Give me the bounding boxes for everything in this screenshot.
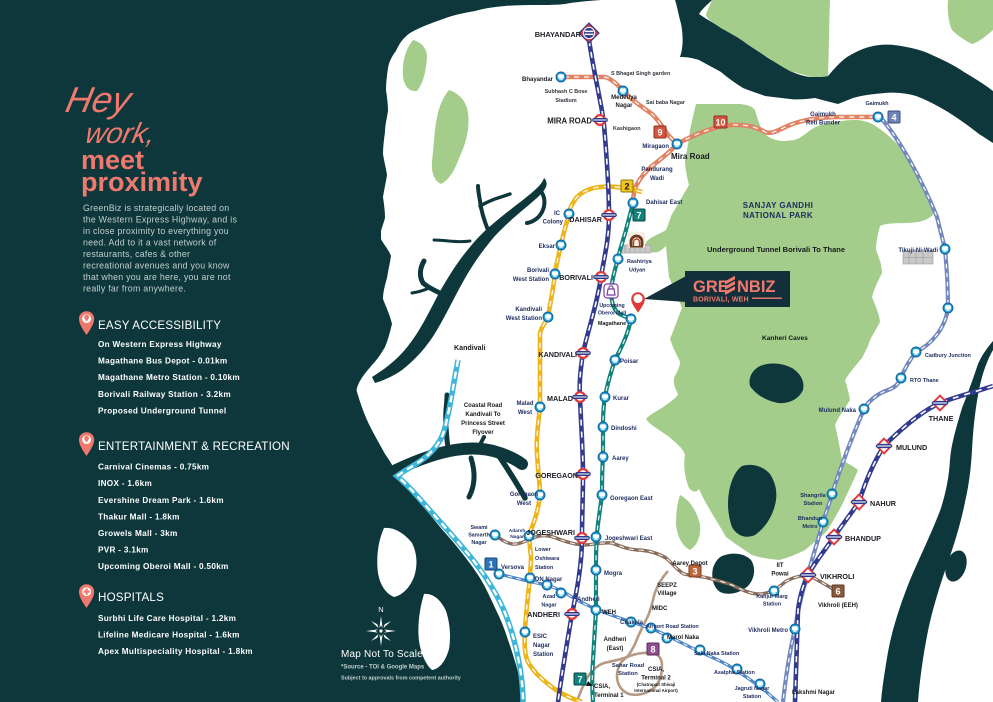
- svg-text:the Western Express Highway, a: the Western Express Highway, and is: [83, 215, 237, 225]
- svg-text:SANJAY GANDHI: SANJAY GANDHI: [743, 201, 814, 210]
- svg-text:Oberoi Mall: Oberoi Mall: [598, 311, 627, 317]
- svg-text:VIKHROLI: VIKHROLI: [820, 572, 854, 581]
- svg-text:Surbhi Life Care Hospital - 1.: Surbhi Life Care Hospital - 1.2km: [98, 614, 236, 623]
- svg-text:Pandurang: Pandurang: [641, 167, 673, 173]
- svg-text:BORIVALI: BORIVALI: [559, 273, 593, 282]
- svg-text:(Chatrapati Shivaji: (Chatrapati Shivaji: [637, 682, 676, 687]
- svg-text:Upcoming Oberoi Mall - 0.50km: Upcoming Oberoi Mall - 0.50km: [98, 562, 229, 571]
- svg-text:Nagar: Nagar: [541, 603, 557, 609]
- svg-text:West Station: West Station: [506, 316, 543, 322]
- svg-text:Kandivali To: Kandivali To: [465, 412, 501, 418]
- svg-text:DN Nagar: DN Nagar: [535, 577, 563, 583]
- svg-text:Underground Tunnel Borivali To: Underground Tunnel Borivali To Thane: [707, 245, 845, 254]
- svg-text:MULUND: MULUND: [896, 443, 927, 452]
- svg-text:Station: Station: [804, 501, 824, 507]
- svg-text:Magathane Bus Depot - 0.01km: Magathane Bus Depot - 0.01km: [98, 357, 227, 366]
- svg-text:Miragaon: Miragaon: [642, 144, 669, 150]
- svg-text:Goregaon East: Goregaon East: [610, 496, 653, 502]
- svg-text:Sai baba Nagar: Sai baba Nagar: [646, 100, 686, 106]
- svg-text:Proposed Underground Tunnel: Proposed Underground Tunnel: [98, 406, 226, 415]
- svg-text:3: 3: [692, 567, 697, 577]
- svg-text:*Source - TOI & Google Maps: *Source - TOI & Google Maps: [341, 665, 425, 671]
- svg-text:Nagar: Nagar: [533, 643, 551, 649]
- svg-text:Goregaon: Goregaon: [510, 492, 539, 498]
- svg-text:Saki Naka Station: Saki Naka Station: [694, 651, 739, 657]
- svg-text:Rashtriya: Rashtriya: [627, 259, 653, 265]
- svg-text:Samarth: Samarth: [468, 533, 490, 539]
- svg-text:Dindoshi: Dindoshi: [611, 426, 637, 432]
- svg-text:Growels Mall - 3km: Growels Mall - 3km: [98, 529, 178, 538]
- svg-text:Borivali: Borivali: [527, 268, 549, 274]
- svg-text:DAHISAR: DAHISAR: [569, 215, 603, 224]
- svg-text:Coastal Road: Coastal Road: [464, 403, 503, 409]
- svg-text:Powai: Powai: [771, 572, 789, 578]
- svg-text:in close proximity to everythi: in close proximity to everything you: [83, 226, 229, 236]
- svg-text:ESIC: ESIC: [533, 634, 548, 640]
- svg-text:Flyover: Flyover: [472, 430, 494, 436]
- svg-text:Station: Station: [763, 602, 781, 608]
- svg-text:Kanheri Caves: Kanheri Caves: [762, 335, 808, 342]
- svg-text:IIT: IIT: [777, 563, 784, 569]
- svg-text:Shangrila: Shangrila: [800, 493, 826, 499]
- svg-text:ENTERTAINMENT & RECREATION: ENTERTAINMENT & RECREATION: [98, 440, 290, 453]
- svg-text:Vikhroli Metro: Vikhroli Metro: [748, 628, 788, 634]
- svg-text:Lifeline Medicare Hospital - 1: Lifeline Medicare Hospital - 1.6km: [98, 631, 240, 640]
- svg-text:MIDC: MIDC: [652, 606, 668, 612]
- svg-text:Chakala: Chakala: [620, 620, 644, 626]
- svg-text:Apex Multispeciality Hospital: Apex Multispeciality Hospital - 1.8km: [98, 647, 253, 656]
- svg-text:7: 7: [636, 211, 641, 221]
- svg-text:1: 1: [488, 560, 493, 570]
- svg-text:Kandivali: Kandivali: [515, 307, 542, 313]
- svg-text:IC: IC: [554, 211, 561, 217]
- svg-text:Andheri: Andheri: [577, 597, 600, 603]
- svg-text:WEH: WEH: [602, 610, 616, 616]
- svg-text:BORIVALI, WEH: BORIVALI, WEH: [693, 297, 749, 304]
- svg-text:MALAD: MALAD: [547, 394, 573, 403]
- svg-text:Mulund Naka: Mulund Naka: [819, 408, 857, 414]
- svg-text:9: 9: [657, 128, 662, 138]
- svg-text:(East): (East): [607, 646, 624, 652]
- svg-text:Nagar: Nagar: [615, 103, 633, 109]
- svg-text:Colony: Colony: [543, 220, 564, 226]
- svg-text:Upcoming: Upcoming: [599, 303, 624, 309]
- svg-text:Aarey Depot: Aarey Depot: [672, 561, 707, 567]
- svg-text:Evershine Dream Park - 1.6km: Evershine Dream Park - 1.6km: [98, 496, 224, 505]
- svg-text:KANDIVALI: KANDIVALI: [538, 350, 577, 359]
- svg-text:restaurants, cafes & other: restaurants, cafes & other: [83, 249, 190, 259]
- svg-text:Thakur Mall - 1.8km: Thakur Mall - 1.8km: [98, 512, 180, 521]
- svg-text:Nagar: Nagar: [471, 540, 487, 546]
- svg-text:Station: Station: [618, 671, 638, 677]
- svg-text:GOREGAON: GOREGAON: [535, 471, 578, 480]
- svg-text:GreenBiz is strategically loca: GreenBiz is strategically located on: [83, 203, 229, 213]
- svg-text:Marol Naka: Marol Naka: [667, 635, 700, 641]
- svg-text:Andheri: Andheri: [604, 637, 627, 643]
- svg-text:really far from anywhere.: really far from anywhere.: [83, 284, 186, 294]
- svg-text:that when you are here, you ar: that when you are here, you are not: [83, 272, 231, 282]
- svg-text:Eksar: Eksar: [539, 244, 556, 250]
- svg-text:Dahisar East: Dahisar East: [646, 200, 682, 206]
- svg-text:Princess Street: Princess Street: [461, 421, 505, 427]
- svg-text:proximity: proximity: [81, 167, 203, 197]
- svg-text:4: 4: [891, 113, 896, 123]
- svg-text:CSIA,: CSIA,: [594, 684, 610, 690]
- svg-text:Bhandup: Bhandup: [798, 516, 823, 522]
- svg-text:NAHUR: NAHUR: [870, 499, 897, 508]
- svg-text:Station: Station: [743, 694, 761, 700]
- svg-text:ANDHERI: ANDHERI: [527, 610, 560, 619]
- svg-text:2: 2: [624, 182, 629, 192]
- svg-text:Reti Bunder: Reti Bunder: [806, 121, 841, 127]
- svg-text:West: West: [518, 410, 532, 416]
- svg-text:S Bhagat Singh garden: S Bhagat Singh garden: [611, 71, 670, 77]
- svg-text:Versova: Versova: [501, 565, 525, 571]
- svg-text:Gaimukh: Gaimukh: [810, 112, 836, 118]
- svg-text:Village: Village: [657, 591, 677, 597]
- svg-text:recreational avenues and you k: recreational avenues and you know: [83, 261, 230, 271]
- svg-text:Kurar: Kurar: [613, 396, 630, 402]
- svg-text:NBIZ: NBIZ: [737, 278, 776, 296]
- svg-text:Poisar: Poisar: [620, 359, 639, 365]
- svg-text:EASY ACCESSIBILITY: EASY ACCESSIBILITY: [98, 319, 221, 332]
- svg-text:CSIA,: CSIA,: [648, 667, 664, 673]
- svg-text:Wadi: Wadi: [650, 176, 664, 182]
- svg-text:INOX - 1.6km: INOX - 1.6km: [98, 479, 152, 488]
- svg-text:West Station: West Station: [513, 277, 550, 283]
- svg-text:BHAYANDAR: BHAYANDAR: [535, 30, 582, 39]
- svg-text:Kanjur Marg: Kanjur Marg: [756, 594, 787, 600]
- svg-text:PVR - 3.1km: PVR - 3.1km: [98, 546, 149, 555]
- svg-text:Hey: Hey: [62, 79, 137, 120]
- svg-text:RTO Thane: RTO Thane: [910, 378, 939, 384]
- svg-text:Bhayandar: Bhayandar: [522, 77, 554, 83]
- svg-text:JOGESHWARI: JOGESHWARI: [526, 528, 575, 537]
- svg-text:Terminal 1: Terminal 1: [594, 693, 624, 699]
- svg-text:Medetiya: Medetiya: [611, 95, 637, 101]
- svg-text:Stadium: Stadium: [555, 98, 576, 104]
- svg-text:NATIONAL PARK: NATIONAL PARK: [743, 211, 813, 220]
- svg-text:Station: Station: [533, 652, 554, 658]
- svg-text:Mira Road: Mira Road: [671, 152, 710, 161]
- svg-text:Magathane: Magathane: [598, 321, 626, 327]
- svg-text:Vikhroli (EEH): Vikhroli (EEH): [818, 603, 858, 609]
- svg-text:SEEPZ: SEEPZ: [657, 583, 677, 589]
- svg-text:Nagar: Nagar: [510, 534, 524, 540]
- svg-text:10: 10: [715, 118, 725, 128]
- svg-text:Cadbury Junction: Cadbury Junction: [925, 353, 971, 359]
- svg-text:Subhash C Bose: Subhash C Bose: [545, 89, 588, 95]
- svg-text:Tikuji-Ni-Wadi: Tikuji-Ni-Wadi: [898, 248, 938, 254]
- svg-text:N: N: [378, 605, 383, 614]
- svg-text:On Western Express Highway: On Western Express Highway: [98, 340, 222, 349]
- svg-text:Mogra: Mogra: [604, 571, 623, 577]
- svg-text:8: 8: [650, 645, 655, 655]
- svg-text:Carnival Cinemas - 0.75km: Carnival Cinemas - 0.75km: [98, 463, 209, 472]
- svg-text:7: 7: [577, 675, 582, 685]
- svg-text:6: 6: [835, 587, 840, 597]
- svg-text:Jagruti Nagar: Jagruti Nagar: [735, 686, 771, 692]
- svg-text:Aarey: Aarey: [612, 456, 629, 462]
- svg-text:Airport Road Station: Airport Road Station: [646, 624, 699, 630]
- svg-text:Oshiwara: Oshiwara: [535, 556, 560, 562]
- svg-text:West: West: [517, 501, 531, 507]
- svg-text:Gaimukh: Gaimukh: [865, 101, 888, 107]
- svg-text:Asalpha Station: Asalpha Station: [714, 670, 755, 676]
- svg-text:THANE: THANE: [929, 414, 954, 423]
- svg-text:Terminal 2: Terminal 2: [641, 676, 671, 682]
- svg-text:Kandivali: Kandivali: [454, 344, 486, 352]
- svg-text:Kashigaon: Kashigaon: [613, 126, 641, 132]
- svg-text:Udyan: Udyan: [629, 268, 645, 274]
- svg-text:Adarsh: Adarsh: [509, 528, 526, 534]
- svg-text:Sahar Road: Sahar Road: [612, 663, 645, 669]
- svg-text:Borivali Railway Station - 3.2: Borivali Railway Station - 3.2km: [98, 390, 231, 399]
- svg-text:Metro: Metro: [802, 524, 818, 530]
- svg-text:Swami: Swami: [470, 525, 488, 531]
- svg-text:need. Add to it a vast network: need. Add to it a vast network of: [83, 238, 217, 248]
- svg-text:Station: Station: [535, 565, 553, 571]
- svg-text:International Airport): International Airport): [634, 688, 678, 693]
- svg-text:Azad: Azad: [543, 594, 556, 600]
- svg-text:Jogeshwari East: Jogeshwari East: [605, 536, 652, 542]
- svg-text:GRE: GRE: [693, 278, 729, 296]
- svg-text:HOSPITALS: HOSPITALS: [98, 591, 164, 604]
- svg-text:Magathane Metro Station - 0.10: Magathane Metro Station - 0.10km: [98, 373, 240, 382]
- svg-text:Lower: Lower: [535, 547, 552, 553]
- svg-text:Map Not To Scale: Map Not To Scale: [341, 649, 423, 660]
- svg-text:BHANDUP: BHANDUP: [845, 534, 881, 543]
- svg-text:Subject to approvals from comp: Subject to approvals from competent auth…: [341, 676, 461, 682]
- svg-text:MIRA ROAD: MIRA ROAD: [547, 117, 592, 126]
- svg-text:Malad: Malad: [516, 401, 533, 407]
- svg-text:Lakshmi Nagar: Lakshmi Nagar: [792, 690, 836, 696]
